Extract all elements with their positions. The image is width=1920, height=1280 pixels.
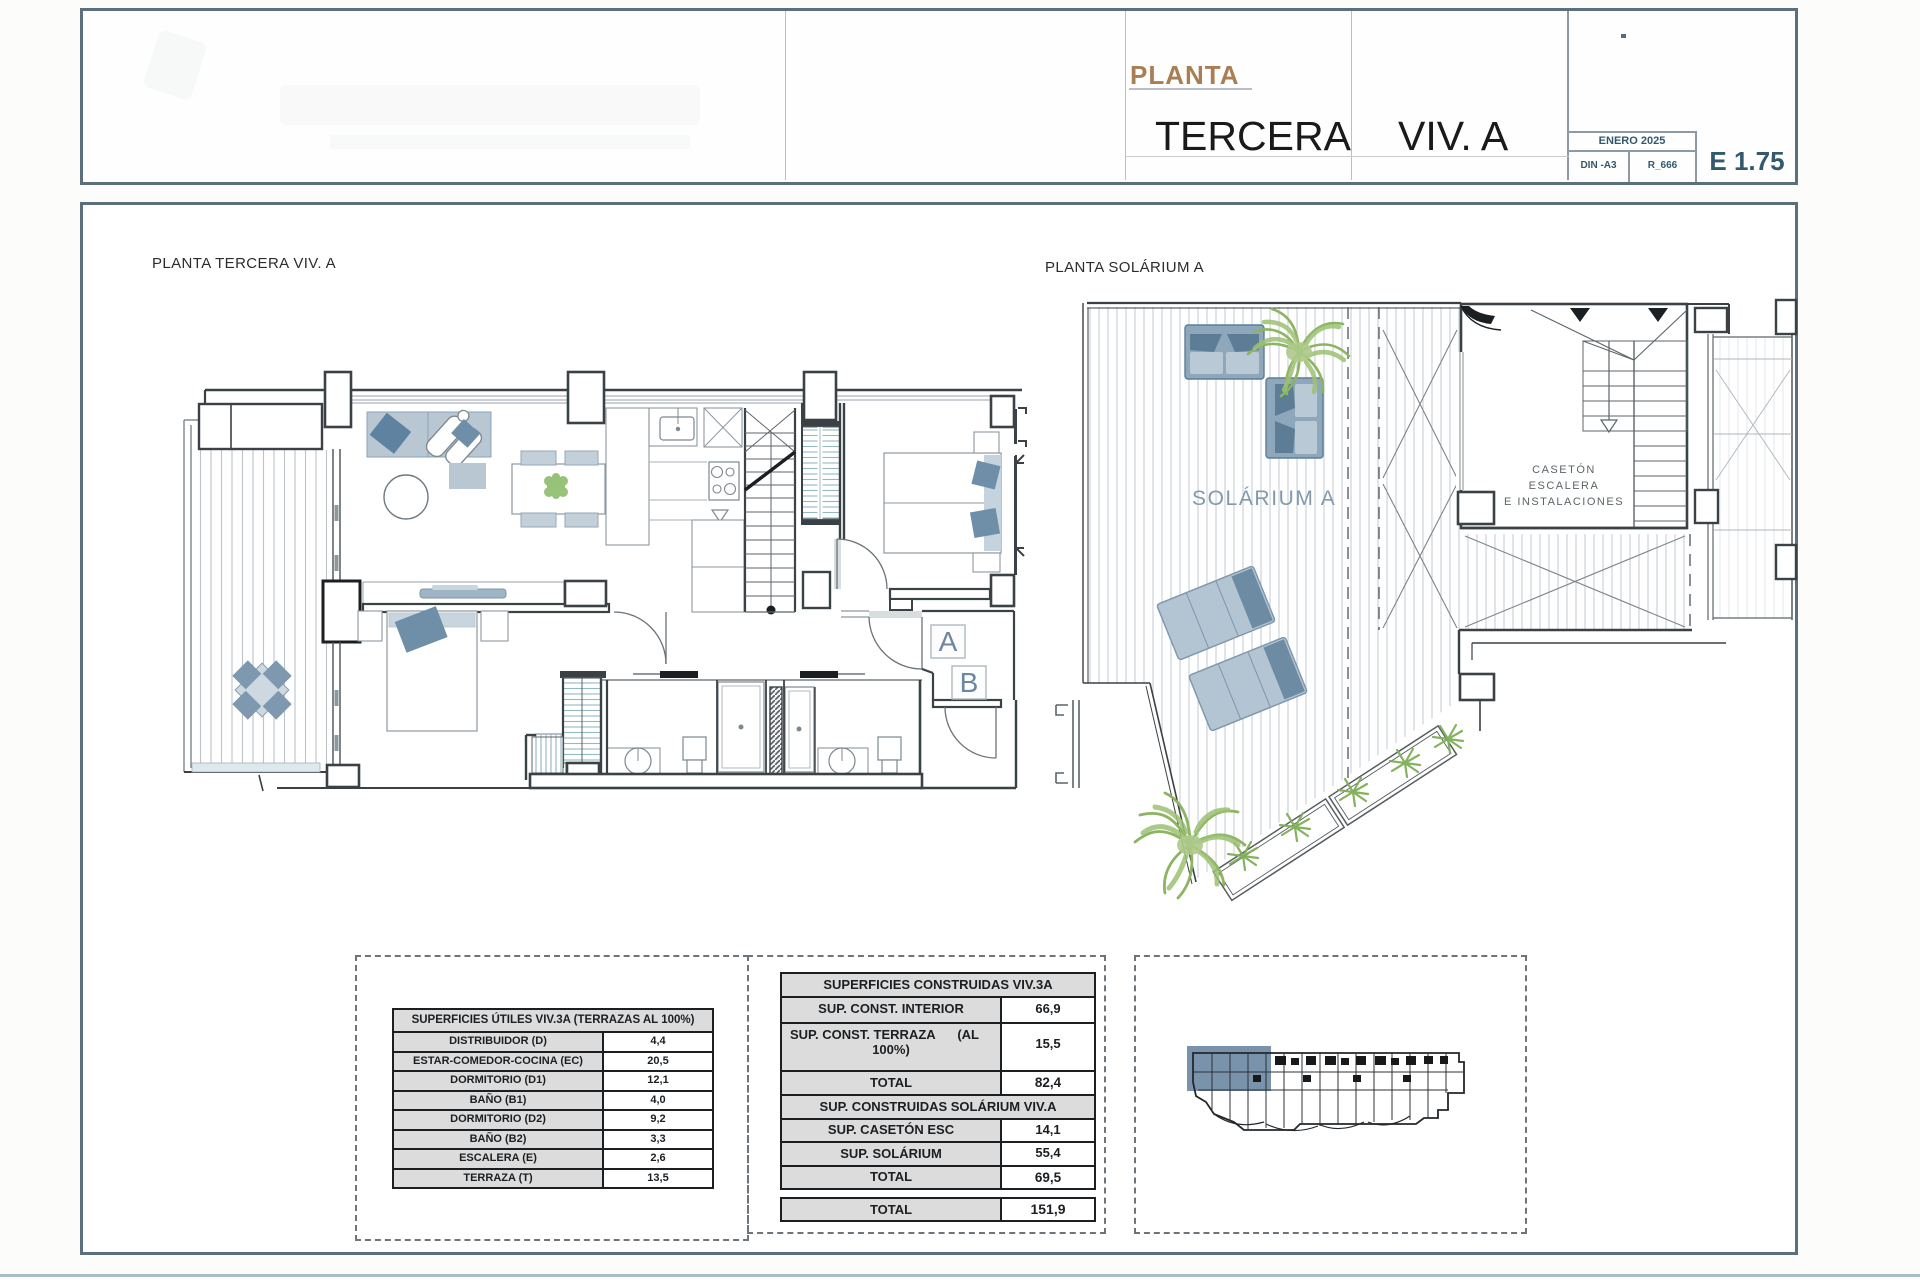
svg-text:CASETÓN: CASETÓN (1532, 463, 1596, 476)
svg-text:B: B (960, 667, 979, 698)
svg-text:A: A (939, 626, 958, 657)
svg-text:ESCALERA: ESCALERA (1529, 480, 1600, 492)
svg-text:E INSTALACIONES: E INSTALACIONES (1504, 496, 1624, 508)
svg-text:SOLÁRIUM A: SOLÁRIUM A (1192, 487, 1336, 510)
